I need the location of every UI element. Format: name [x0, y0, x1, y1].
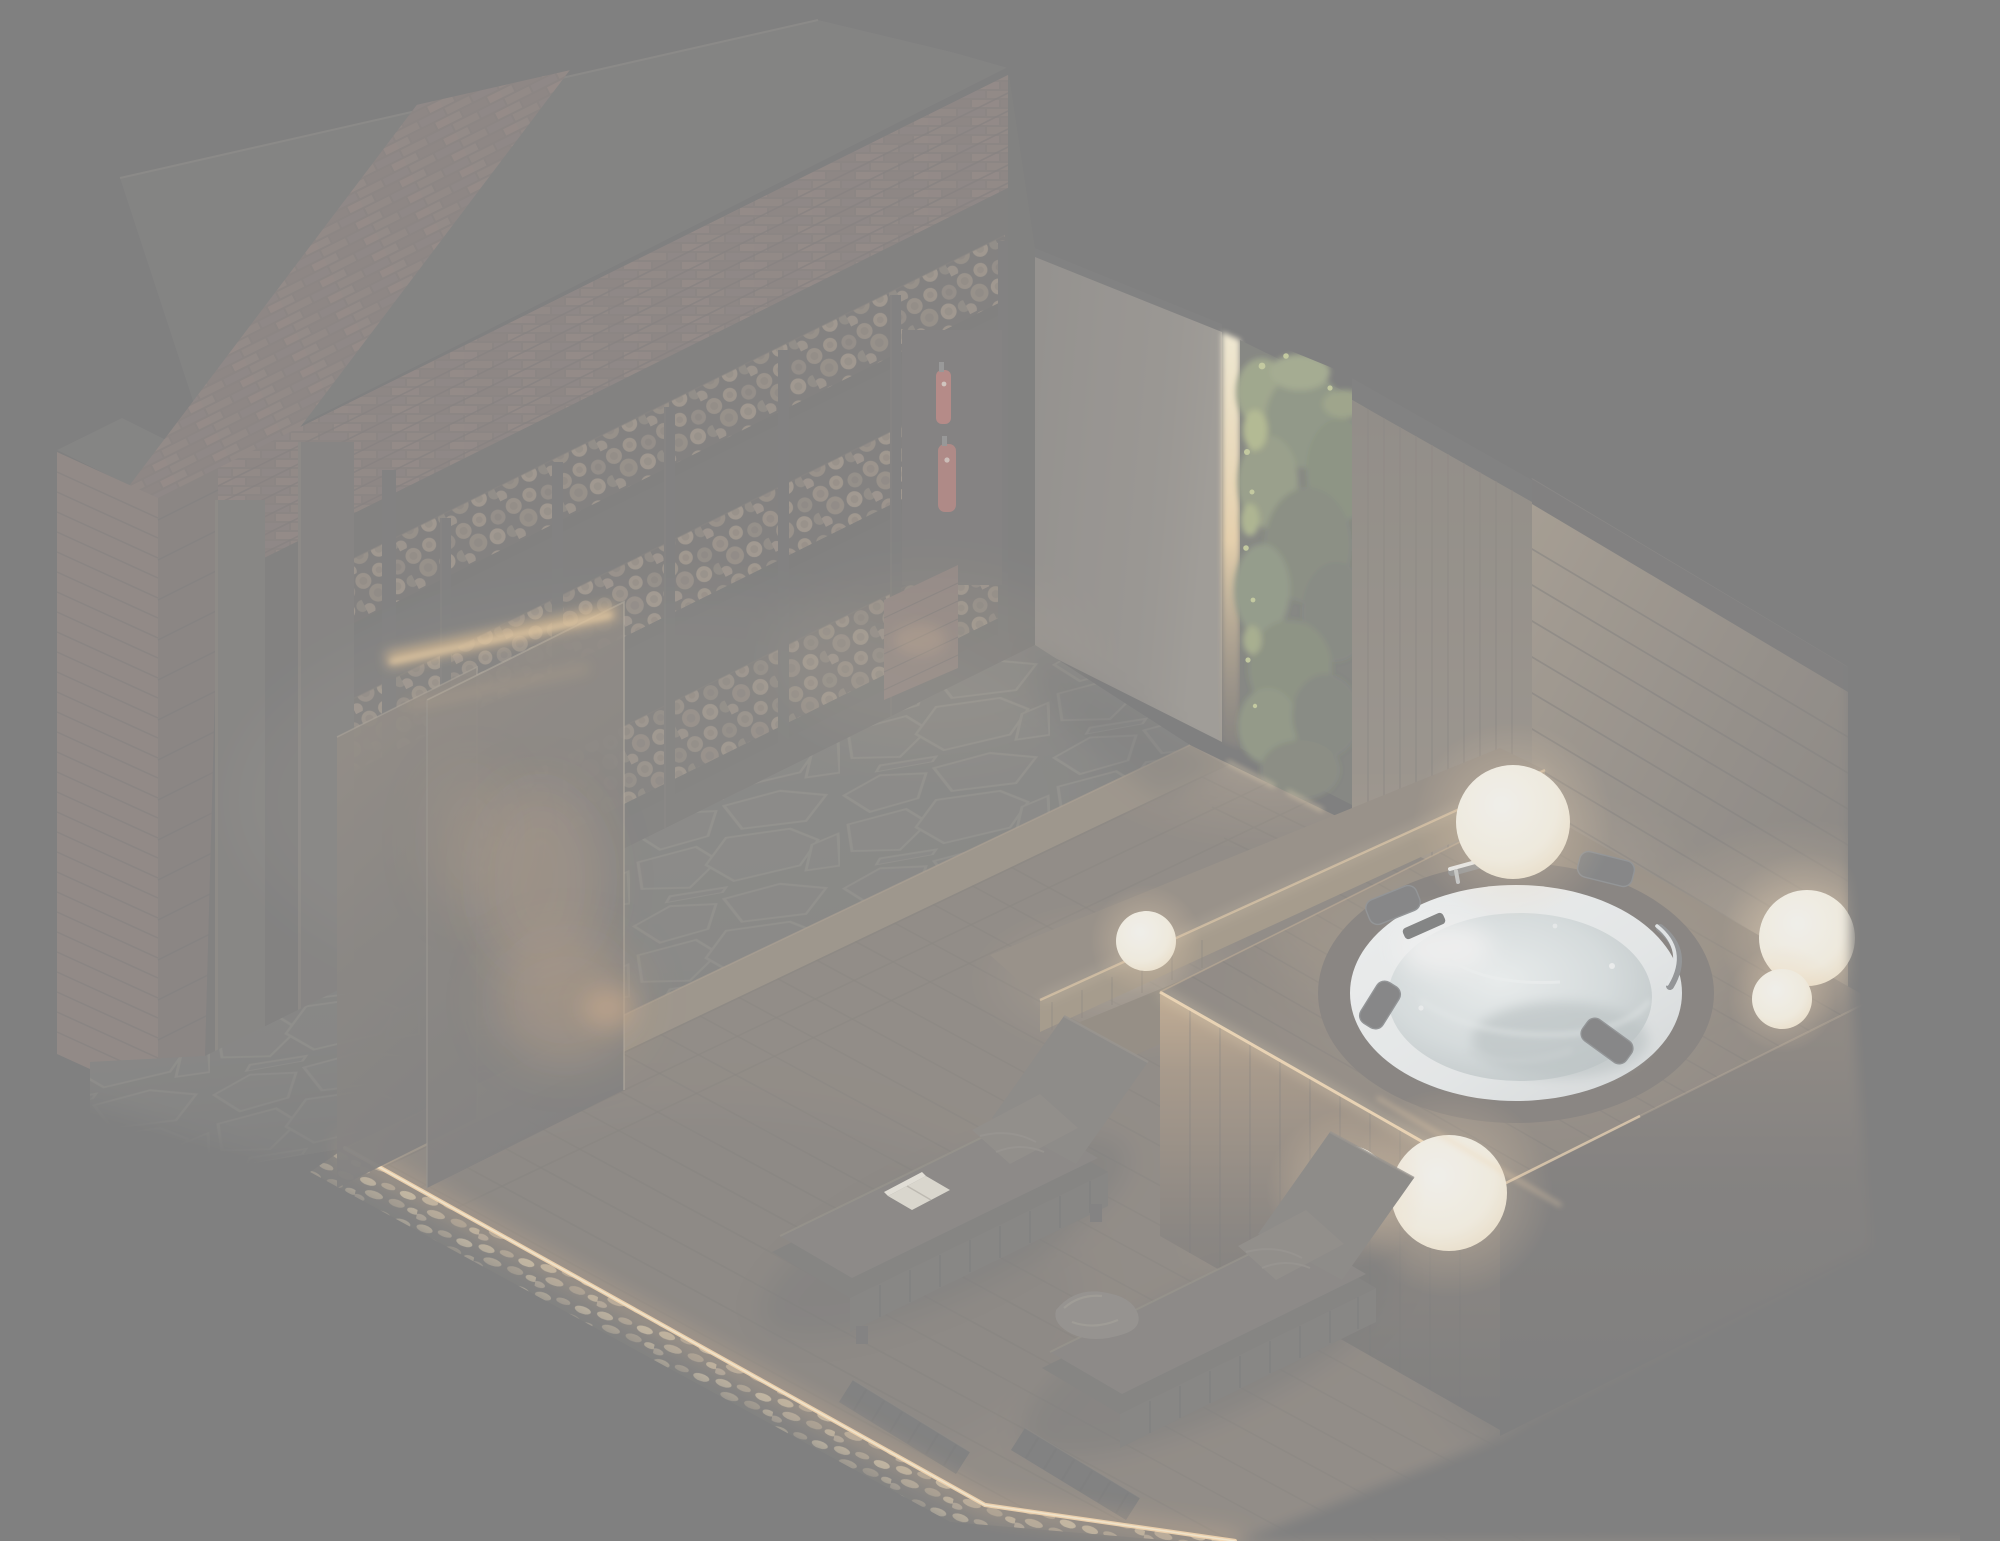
film-grain — [0, 0, 2000, 1541]
render-canvas — [0, 0, 2000, 1541]
spa-terrace-render — [0, 0, 2000, 1541]
